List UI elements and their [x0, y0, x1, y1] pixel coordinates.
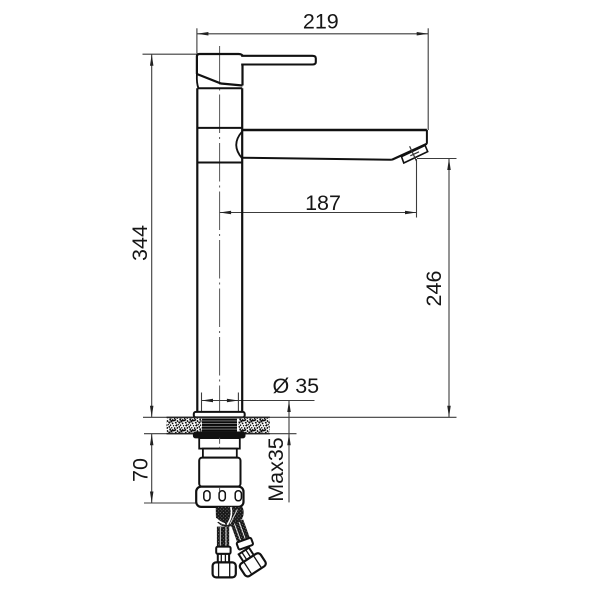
svg-text:187: 187 [305, 191, 341, 215]
svg-text:70: 70 [129, 458, 153, 482]
svg-text:Max35: Max35 [264, 437, 288, 502]
svg-text:344: 344 [128, 225, 152, 261]
svg-text:Ø 35: Ø 35 [273, 374, 320, 398]
svg-text:219: 219 [303, 10, 339, 34]
svg-text:246: 246 [422, 271, 446, 307]
